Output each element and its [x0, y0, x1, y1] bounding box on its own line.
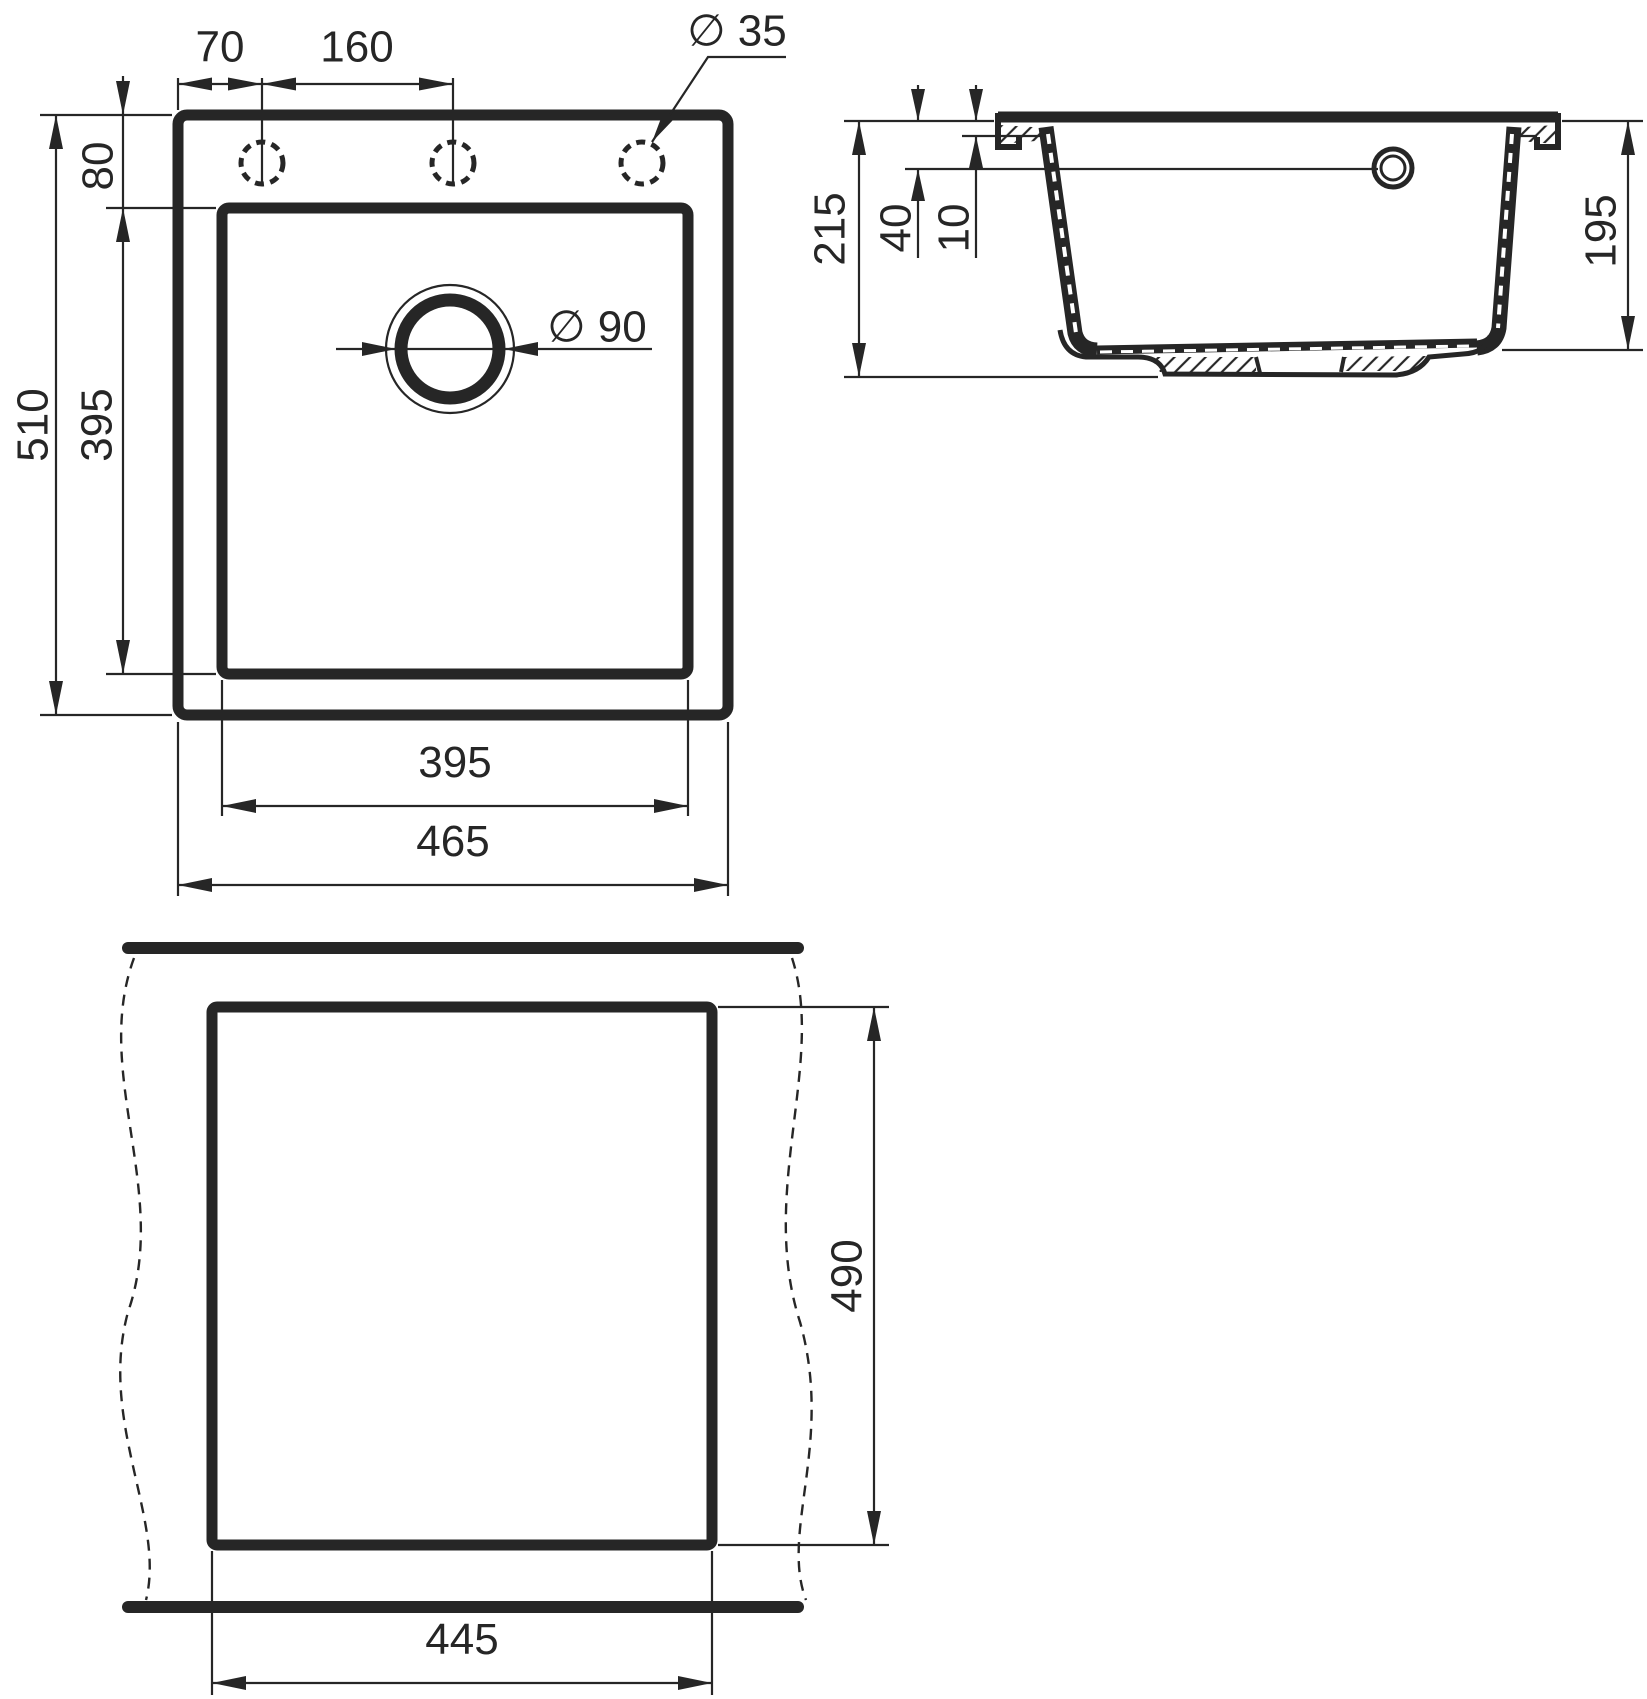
break-line-left [120, 958, 150, 1600]
arrowhead [911, 89, 925, 121]
arrowhead [212, 1676, 246, 1690]
arrowhead [362, 342, 396, 356]
sink-dimension-drawing: ∅ 90 70 160 ∅ 35 [0, 0, 1647, 1699]
dim-label-cutout-width: 445 [425, 1615, 498, 1664]
dim-label-rim-thickness: 10 [929, 204, 978, 253]
arrowhead [867, 1007, 881, 1041]
top-view: ∅ 90 70 160 ∅ 35 [8, 6, 786, 896]
dim-label-hole-pitch: 160 [320, 22, 393, 71]
arrowhead [852, 343, 866, 377]
dim-label-overall-width: 465 [416, 817, 489, 866]
dim-label-rim-to-bowl: 80 [73, 142, 122, 191]
arrowhead [1621, 121, 1635, 155]
dim-label-bowl-width: 395 [418, 738, 491, 787]
arrowhead [116, 208, 130, 242]
leader-line [652, 57, 786, 142]
hatch-left-foot [1150, 357, 1256, 372]
overflow-hole-inner [1381, 156, 1405, 180]
arrowhead [969, 136, 983, 168]
arrowhead [49, 115, 63, 149]
arrowhead [911, 169, 925, 201]
arrowhead [116, 640, 130, 674]
arrowhead [852, 121, 866, 155]
dim-label-overall-length: 510 [8, 388, 57, 461]
arrowhead [49, 681, 63, 715]
arrowhead [969, 89, 983, 121]
arrowhead [228, 78, 262, 91]
arrowhead [504, 342, 538, 356]
dim-holes-top: 70 160 [178, 22, 453, 110]
dim-label-hole-offset: 70 [196, 22, 245, 71]
section-view: 215 40 10 195 [805, 85, 1643, 377]
dim-label-overflow-offset: 40 [871, 204, 920, 253]
cutout-view: 490 445 [120, 948, 889, 1695]
arrowhead [654, 799, 688, 813]
dim-label-drain-diameter: ∅ 90 [547, 302, 647, 351]
arrowhead [419, 78, 453, 91]
drain-recess-edge [1256, 357, 1260, 373]
technical-drawing-page: ∅ 90 70 160 ∅ 35 [0, 0, 1647, 1699]
arrowhead [867, 1511, 881, 1545]
arrowhead [116, 81, 130, 115]
break-line-right [786, 958, 812, 1600]
arrowhead [178, 878, 212, 892]
dim-label-hole-diameter: ∅ 35 [687, 6, 787, 55]
sink-bowl-opening [222, 208, 688, 674]
dim-label-cutout-depth: 490 [822, 1239, 871, 1312]
faucet-hole-3 [621, 142, 663, 184]
hatch-right-foot [1344, 356, 1427, 371]
cutout-rectangle [212, 1007, 712, 1545]
arrowhead [222, 799, 256, 813]
dim-label-overall-height: 215 [805, 192, 854, 265]
dim-cutout-depth: 490 [718, 1007, 889, 1545]
arrowhead [678, 1676, 712, 1690]
dim-overflow-offset: 40 [871, 85, 925, 258]
arrowhead [262, 78, 296, 91]
dim-label-bowl-depth: 195 [1576, 194, 1625, 267]
faucet-holes [241, 78, 663, 186]
dim-label-bowl-length: 395 [72, 388, 121, 461]
drain-recess-edge [1341, 357, 1344, 372]
arrowhead [178, 78, 212, 91]
dim-cutout-width: 445 [212, 1551, 712, 1695]
dim-left-vertical: 80 395 510 [8, 76, 216, 715]
arrowhead [1621, 316, 1635, 350]
dim-overall-height: 215 [805, 121, 1158, 377]
arrowhead [694, 878, 728, 892]
dim-hole-diameter: ∅ 35 [652, 6, 787, 142]
dim-bowl-depth: 195 [1502, 121, 1643, 350]
dim-rim-thickness: 10 [929, 85, 983, 258]
drain: ∅ 90 [336, 285, 652, 413]
